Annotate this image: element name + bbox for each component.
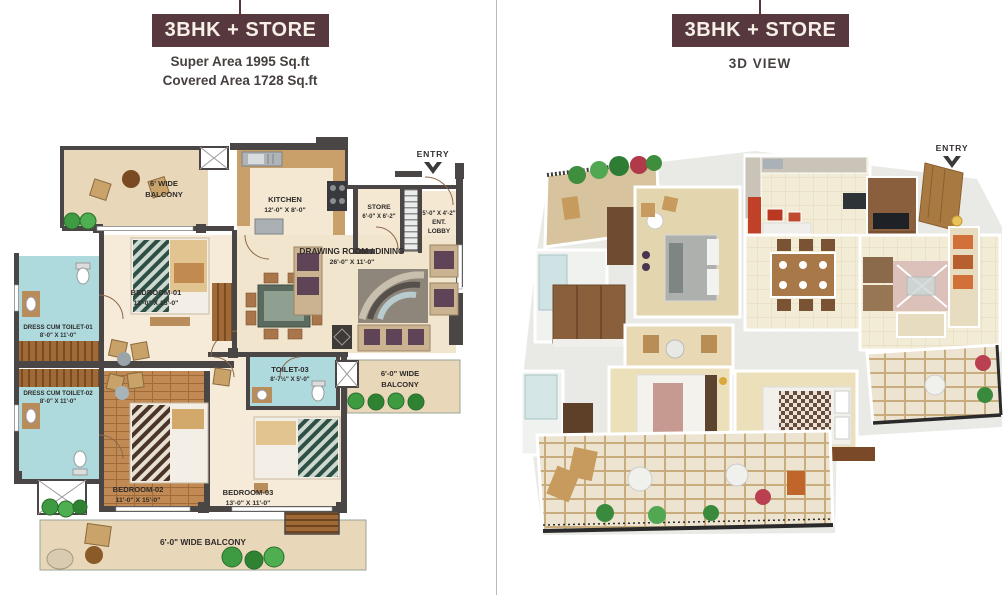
balcony-bottom-label: 6'-0" WIDE BALCONY bbox=[160, 537, 246, 547]
drawing-dims: 26'-0" X 11'-0" bbox=[330, 259, 375, 266]
dct2-label: DRESS CUM TOILET-02 bbox=[23, 390, 93, 397]
stairs-bottom bbox=[285, 512, 339, 534]
wardrobe-column-3d bbox=[607, 207, 635, 265]
bedroom1-dims: 11'-0" X 15'-0" bbox=[134, 300, 179, 307]
lobby-label1: ENT. bbox=[432, 219, 446, 226]
balcony-top-label2: BALCONY bbox=[145, 190, 183, 199]
right-title: 3BHK + STORE bbox=[685, 19, 837, 42]
left-title: 3BHK + STORE bbox=[165, 19, 317, 42]
kitchen-label: KITCHEN bbox=[268, 195, 302, 204]
floor-plan-2d: 6' WIDE BALCONY KITCHEN 12'-0" X 8'-0" S… bbox=[0, 135, 497, 595]
left-subtitle-1: Super Area 1995 Sq.ft bbox=[90, 54, 390, 69]
entry-arrow-icon bbox=[424, 162, 442, 174]
entry-label-2d: ENTRY bbox=[417, 149, 450, 159]
right-subtitle: 3D VIEW bbox=[610, 56, 910, 71]
dress1-wardrobe bbox=[18, 341, 99, 361]
toilet3-label: TOILET-03 bbox=[271, 365, 308, 374]
stove bbox=[327, 181, 347, 211]
living-3d bbox=[860, 216, 1000, 350]
store-label: STORE bbox=[367, 204, 391, 211]
stair-shaft bbox=[404, 189, 418, 251]
balcony-3d-right bbox=[867, 345, 1001, 423]
left-title-stem bbox=[239, 0, 241, 14]
bedroom1-3d bbox=[635, 187, 740, 317]
kitchen-dims: 12'-0" X 8'-0" bbox=[264, 207, 305, 214]
balcony-right-label2: BALCONY bbox=[381, 380, 419, 389]
wardrobe-block-3d bbox=[553, 285, 625, 347]
bedroom1-label: BEDROOM-01 bbox=[131, 288, 182, 297]
entry-marker-3d: ENTRY bbox=[936, 143, 969, 168]
bedroom3-label: BEDROOM-03 bbox=[223, 488, 274, 497]
left-subtitle-2: Covered Area 1728 Sq.ft bbox=[90, 73, 390, 88]
dress2-wardrobe bbox=[18, 369, 99, 387]
dct2-dims: 8'-0" X 11'-0" bbox=[40, 399, 76, 405]
dct1-dims: 8'-0" X 11'-0" bbox=[40, 333, 76, 339]
bedroom3-dims: 13'-0" X 11'-0" bbox=[226, 500, 271, 507]
entry-label-3d: ENTRY bbox=[936, 143, 969, 153]
right-title-stem bbox=[759, 0, 761, 14]
bedroom2-label: BEDROOM-02 bbox=[113, 485, 164, 494]
bedroom2-dims: 11'-0" X 15'-0" bbox=[116, 497, 161, 504]
balcony-3d-bottom bbox=[537, 431, 833, 531]
tv-wall-3d bbox=[867, 177, 917, 241]
dct1-label: DRESS CUM TOILET-01 bbox=[23, 324, 93, 331]
drawing-label: DRAWING ROOM / DINING bbox=[299, 246, 404, 256]
balcony-top-label: 6' WIDE bbox=[150, 179, 178, 188]
fridge bbox=[255, 219, 283, 234]
left-title-box: 3BHK + STORE bbox=[152, 14, 329, 47]
entry-arrow-icon-3d bbox=[943, 156, 961, 168]
store-dims: 6'-0" X 6'-2" bbox=[362, 214, 395, 220]
entry-marker-2d: ENTRY bbox=[417, 149, 450, 174]
brochure-page: 3BHK + STORE Super Area 1995 Sq.ft Cover… bbox=[0, 0, 1005, 595]
balcony-right-label: 6'-0" WIDE bbox=[381, 369, 419, 378]
lobby-dims: 5'-0" X 4'-2" bbox=[422, 211, 455, 217]
floor-plan-3d: ENTRY bbox=[505, 135, 1005, 595]
lobby-label2: LOBBY bbox=[428, 228, 451, 235]
wardrobe bbox=[212, 283, 232, 341]
right-title-box: 3BHK + STORE bbox=[672, 14, 849, 47]
toilet3-dims: 8'-7½" X 5'-0" bbox=[270, 376, 309, 383]
